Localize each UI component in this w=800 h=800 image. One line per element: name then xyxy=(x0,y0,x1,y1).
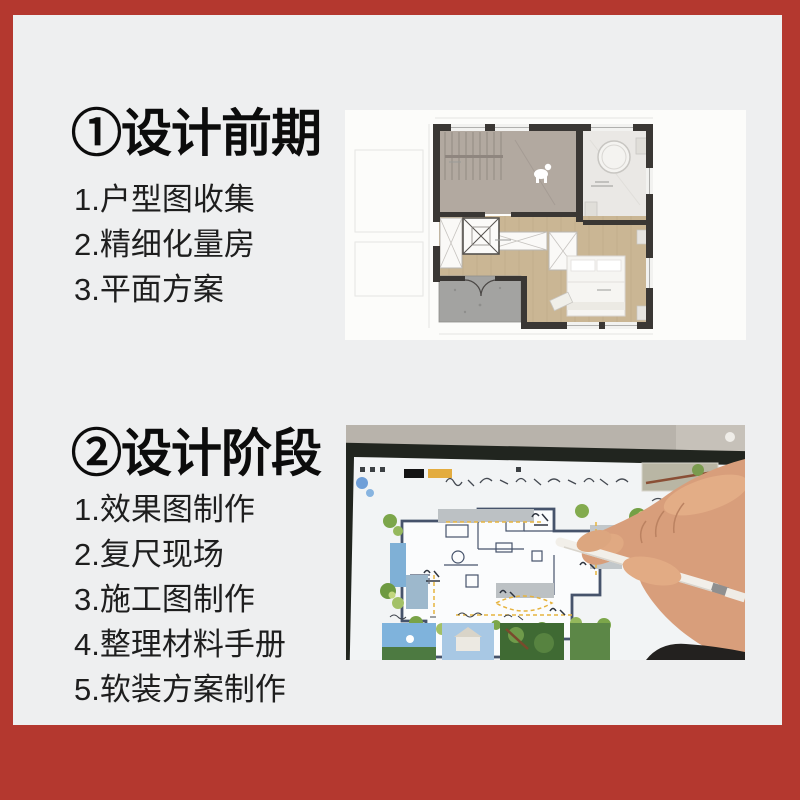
section2-step-list: 1.效果图制作 2.复尺现场 3.施工图制作 4.整理材料手册 5.软装方案制作 xyxy=(74,487,286,712)
footer-bar: KINGSER' DECORATION 金舍装饰 xyxy=(0,725,800,800)
list-item: 4.整理材料手册 xyxy=(74,622,286,667)
section2-heading: ②设计阶段 xyxy=(71,427,321,481)
poster-page: ①设计前期 1.户型图收集 2.精细化量房 3.平面方案 xyxy=(0,0,800,800)
section1-step-list: 1.户型图收集 2.精细化量房 3.平面方案 xyxy=(74,177,255,312)
floor-plan-image xyxy=(345,110,746,340)
section1-heading: ①设计前期 xyxy=(71,107,321,161)
list-item: 2.精细化量房 xyxy=(74,222,255,267)
content-area: ①设计前期 1.户型图收集 2.精细化量房 3.平面方案 xyxy=(13,15,782,725)
list-item: 1.效果图制作 xyxy=(74,487,286,532)
list-item: 3.施工图制作 xyxy=(74,577,286,622)
list-item: 5.软装方案制作 xyxy=(74,667,286,712)
tablet-photo xyxy=(346,425,745,660)
list-item: 3.平面方案 xyxy=(74,267,255,312)
floor-plan-drawing xyxy=(345,110,746,340)
list-item: 2.复尺现场 xyxy=(74,532,286,577)
tablet-photo-drawing xyxy=(346,425,745,660)
list-item: 1.户型图收集 xyxy=(74,177,255,222)
